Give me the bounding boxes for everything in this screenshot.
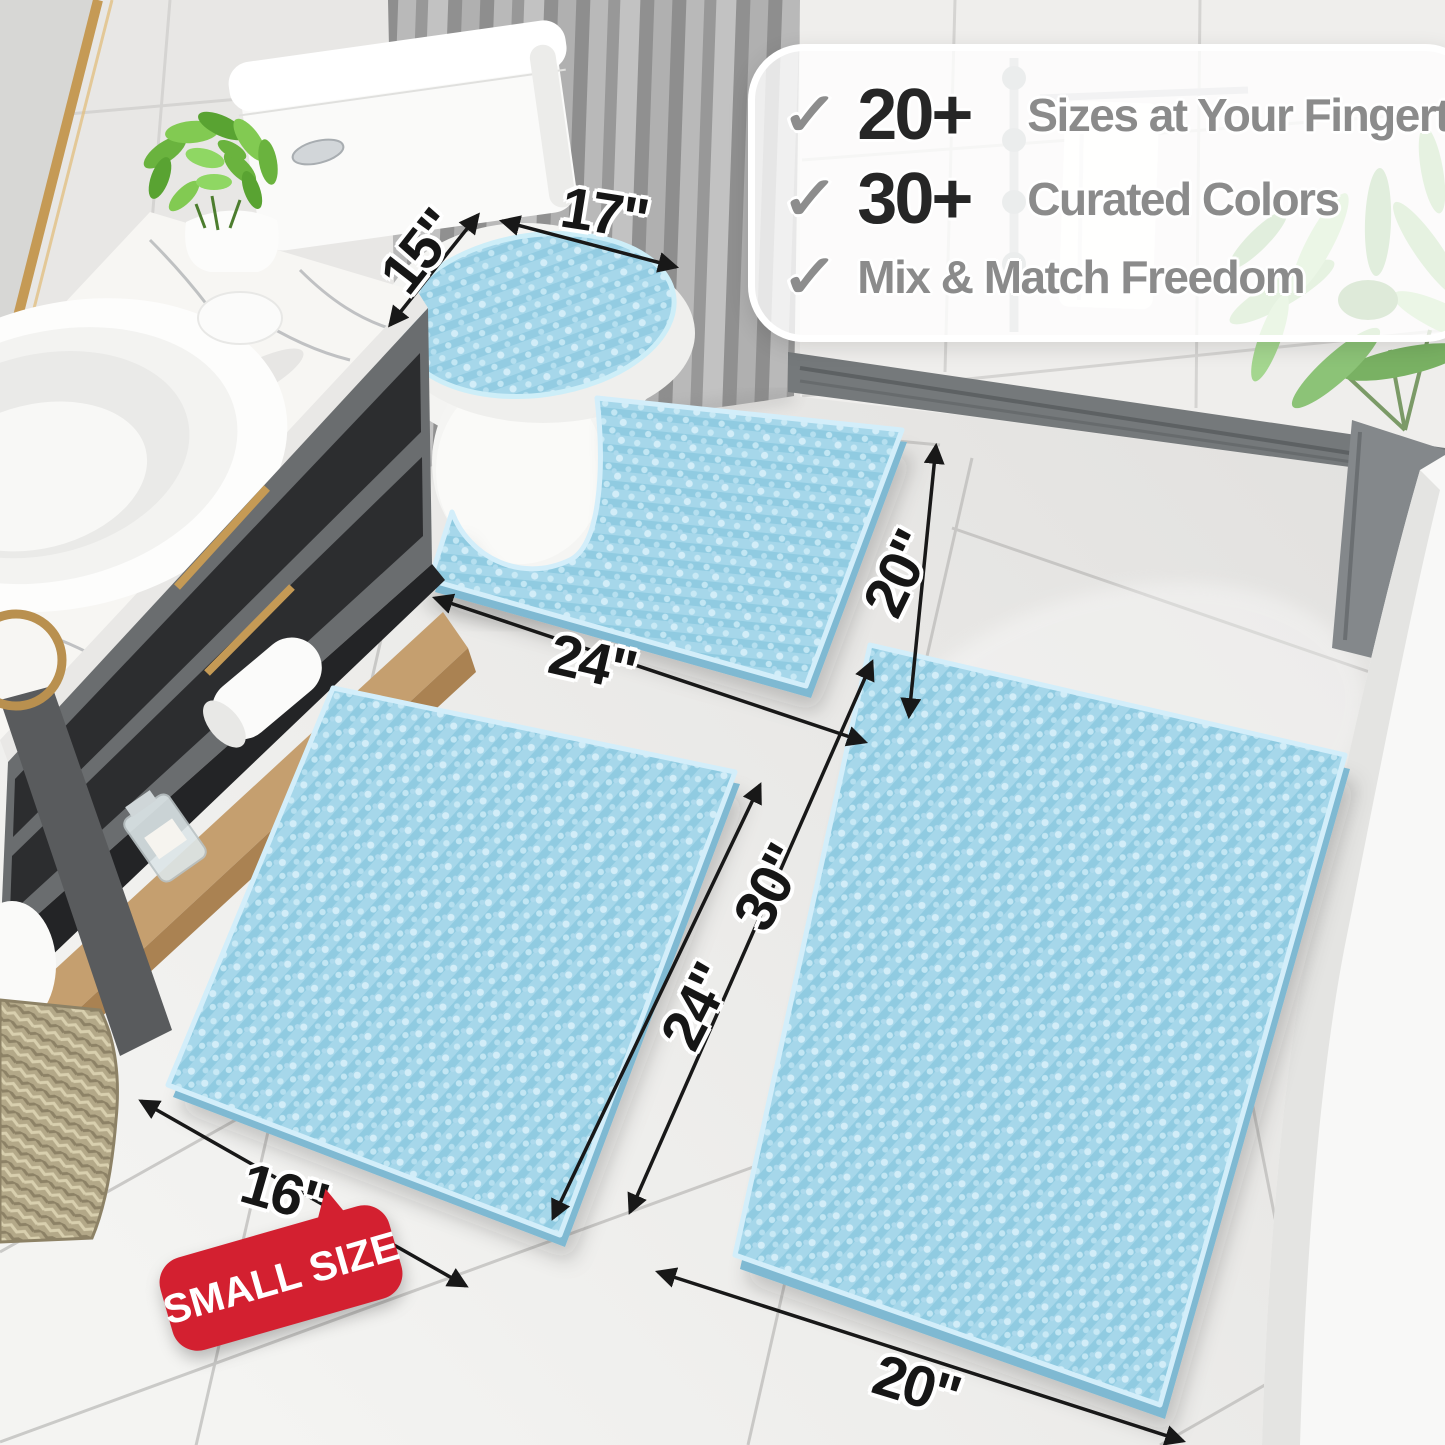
callout-row-sizes: ✓ 20+ Sizes at Your Fingertips	[785, 79, 1445, 151]
product-photo-bath-rug-set: 15" 17" 24" 20" 16" 24" 30" 20" SMALL SI…	[0, 0, 1445, 1445]
callout-row-mix-match: ✓ Mix & Match Freedom	[785, 247, 1445, 307]
dimension-label-lid-width: 17"	[557, 179, 651, 250]
badge-tail	[316, 1188, 353, 1223]
check-icon: ✓	[781, 85, 839, 145]
callout-label: Mix & Match Freedom	[857, 254, 1304, 300]
callout-label: Curated Colors	[1027, 176, 1338, 222]
counter-jar	[198, 292, 282, 344]
callout-row-colors: ✓ 30+ Curated Colors	[785, 163, 1445, 235]
feature-callout: ✓ 20+ Sizes at Your Fingertips ✓ 30+ Cur…	[748, 44, 1445, 342]
check-icon: ✓	[781, 169, 839, 229]
callout-label: Sizes at Your Fingertips	[1027, 92, 1445, 138]
check-icon: ✓	[781, 247, 839, 307]
woven-basket	[0, 1000, 117, 1242]
callout-number: 30+	[857, 163, 1005, 235]
callout-number: 20+	[857, 79, 1005, 151]
